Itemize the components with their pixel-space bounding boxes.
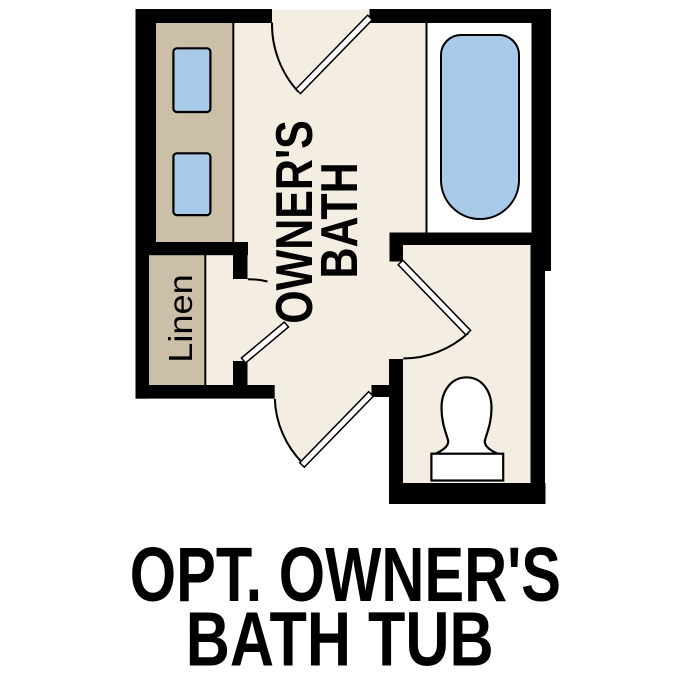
- svg-text:BATH TUB: BATH TUB: [186, 596, 494, 682]
- svg-text:Linen: Linen: [163, 274, 199, 363]
- svg-text:BATH: BATH: [311, 162, 369, 278]
